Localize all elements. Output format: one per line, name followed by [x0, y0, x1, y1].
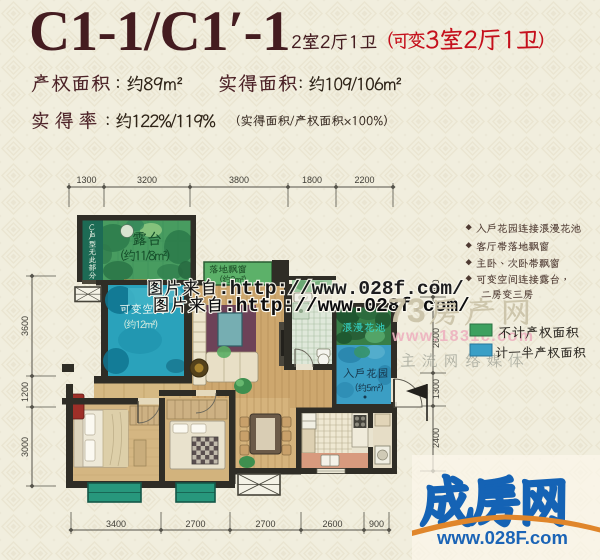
- svg-text:1200: 1200: [20, 382, 30, 402]
- svg-text:2600: 2600: [322, 519, 342, 529]
- svg-text:3200: 3200: [137, 175, 157, 185]
- svg-text:3400: 3400: [106, 519, 126, 529]
- svg-text:3800: 3800: [229, 175, 249, 185]
- svg-text:C1-1/C1′-1: C1-1/C1′-1: [29, 0, 290, 63]
- svg-text:3000: 3000: [20, 437, 30, 457]
- svg-text:2700: 2700: [185, 519, 205, 529]
- svg-text:2700: 2700: [255, 519, 275, 529]
- svg-text:3600: 3600: [20, 316, 30, 336]
- svg-text:www.028F.com: www.028F.com: [436, 527, 568, 548]
- svg-text:1800: 1800: [302, 175, 322, 185]
- svg-text:1300: 1300: [76, 175, 96, 185]
- svg-text:2200: 2200: [354, 175, 374, 185]
- svg-text:2400: 2400: [431, 428, 441, 448]
- svg-text:1300: 1300: [431, 379, 441, 399]
- svg-text:73: 73: [388, 292, 426, 330]
- svg-text:www.1831c.com: www.1831c.com: [391, 328, 535, 345]
- svg-text::http://www.028f.com/: :http://www.028f.com/: [224, 295, 470, 317]
- svg-text:900: 900: [369, 519, 384, 529]
